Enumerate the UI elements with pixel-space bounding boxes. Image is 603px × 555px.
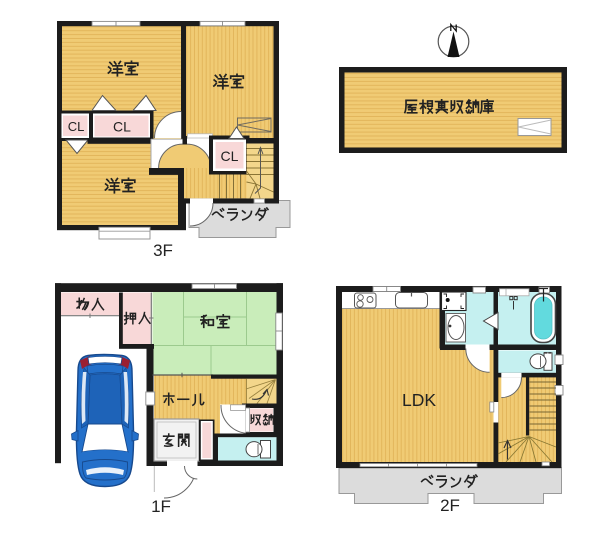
svg-text:CL: CL xyxy=(113,119,131,135)
svg-text:2F: 2F xyxy=(440,496,460,515)
svg-text:LDK: LDK xyxy=(402,390,436,410)
svg-text:1F: 1F xyxy=(151,497,171,516)
svg-text:3F: 3F xyxy=(153,241,173,260)
svg-text:CL: CL xyxy=(221,148,239,164)
svg-text:CL: CL xyxy=(68,119,85,134)
